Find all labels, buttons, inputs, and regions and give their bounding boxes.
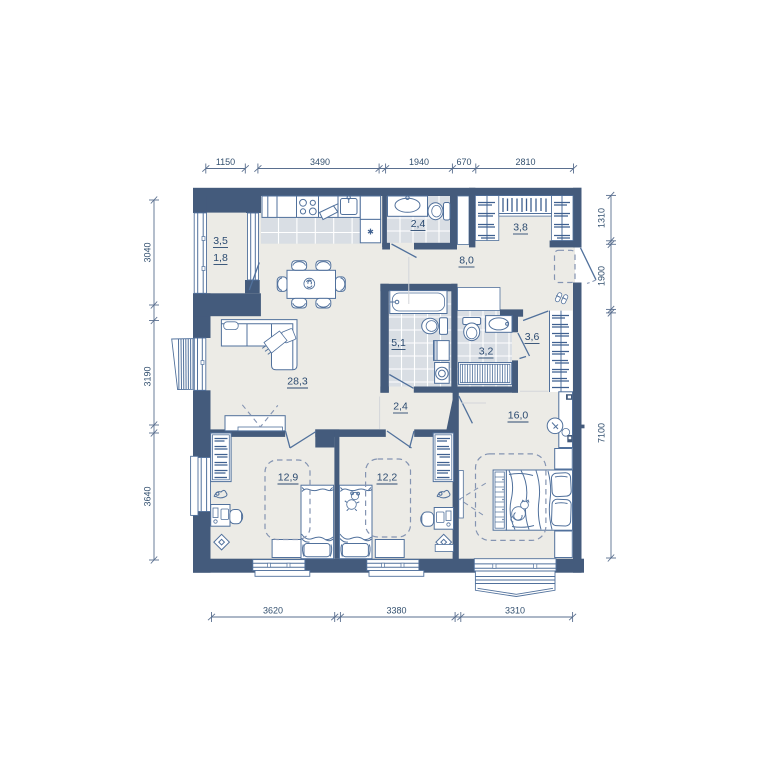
svg-text:3190: 3190 bbox=[143, 366, 153, 386]
svg-text:3490: 3490 bbox=[310, 157, 330, 167]
svg-text:7100: 7100 bbox=[597, 423, 607, 443]
svg-text:12,9: 12,9 bbox=[278, 472, 299, 484]
svg-text:2,4: 2,4 bbox=[393, 401, 408, 413]
svg-text:28,3: 28,3 bbox=[287, 376, 308, 388]
svg-text:670: 670 bbox=[456, 157, 471, 167]
svg-text:3310: 3310 bbox=[505, 606, 525, 616]
svg-text:3040: 3040 bbox=[143, 242, 153, 262]
svg-text:3,6: 3,6 bbox=[525, 331, 540, 343]
svg-text:12,2: 12,2 bbox=[377, 472, 398, 484]
svg-text:1,8: 1,8 bbox=[213, 252, 228, 264]
svg-text:3,5: 3,5 bbox=[213, 235, 228, 247]
svg-text:8,0: 8,0 bbox=[459, 255, 474, 267]
svg-text:1900: 1900 bbox=[597, 266, 607, 286]
svg-text:3380: 3380 bbox=[386, 606, 406, 616]
svg-text:3,2: 3,2 bbox=[479, 346, 494, 358]
svg-text:5,1: 5,1 bbox=[391, 337, 406, 349]
svg-text:16,0: 16,0 bbox=[508, 410, 529, 422]
svg-text:3640: 3640 bbox=[143, 486, 153, 506]
svg-text:2,4: 2,4 bbox=[411, 218, 426, 230]
svg-text:1310: 1310 bbox=[597, 208, 607, 228]
svg-text:3620: 3620 bbox=[263, 606, 283, 616]
svg-text:✱: ✱ bbox=[367, 228, 374, 237]
svg-text:1150: 1150 bbox=[216, 157, 235, 167]
svg-text:3,8: 3,8 bbox=[513, 222, 528, 234]
svg-text:2810: 2810 bbox=[515, 157, 535, 167]
svg-text:1940: 1940 bbox=[409, 157, 429, 167]
